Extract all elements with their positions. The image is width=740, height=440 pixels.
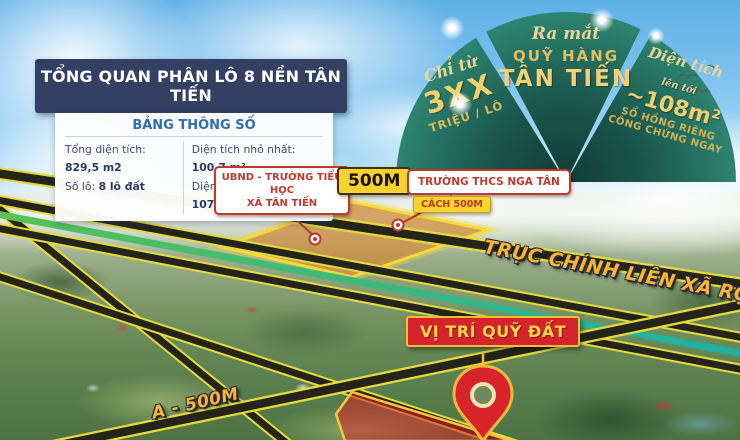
spec-col-left: Tổng diện tích: 829,5 m2 Số lô: 8 lô đất xyxy=(65,141,184,214)
school-primary-line1: UBND - TRƯỜNG TIỂU HỌC xyxy=(218,171,346,197)
site-marker-label: VỊ TRÍ QUỸ ĐẤT xyxy=(406,316,580,347)
lot-count-value: 8 lô đất xyxy=(99,180,145,193)
lot-count-label: Số lô: xyxy=(65,180,95,193)
real-estate-poster: Ra mắt QUỸ HÀNG TÂN TIẾN Chỉ từ 3XX TRIỆ… xyxy=(0,0,740,440)
info-box-title: TỔNG QUAN PHÂN LÔ 8 NỀN TÂN TIẾN xyxy=(35,59,347,113)
school-primary-line2: XÃ TÂN TIẾN xyxy=(218,197,346,210)
school-primary-label: UBND - TRƯỜNG TIỂU HỌC XÃ TÂN TIẾN xyxy=(214,166,350,215)
distance-badge: 500M xyxy=(337,167,411,195)
min-area-label: Diện tích nhỏ nhất: xyxy=(192,143,296,156)
total-area-value: 829,5 m2 xyxy=(65,161,122,174)
spec-table-title: BẢNG THÔNG SỐ xyxy=(65,118,323,137)
lot-count-row: Số lô: 8 lô đất xyxy=(65,178,177,196)
total-area-label: Tổng diện tích: xyxy=(65,143,146,156)
school-secondary-label: TRƯỜNG THCS NGA TÂN xyxy=(407,169,571,195)
distance-note-badge: CÁCH 500M xyxy=(413,196,491,213)
total-area-row: Tổng diện tích: 829,5 m2 xyxy=(65,141,177,178)
